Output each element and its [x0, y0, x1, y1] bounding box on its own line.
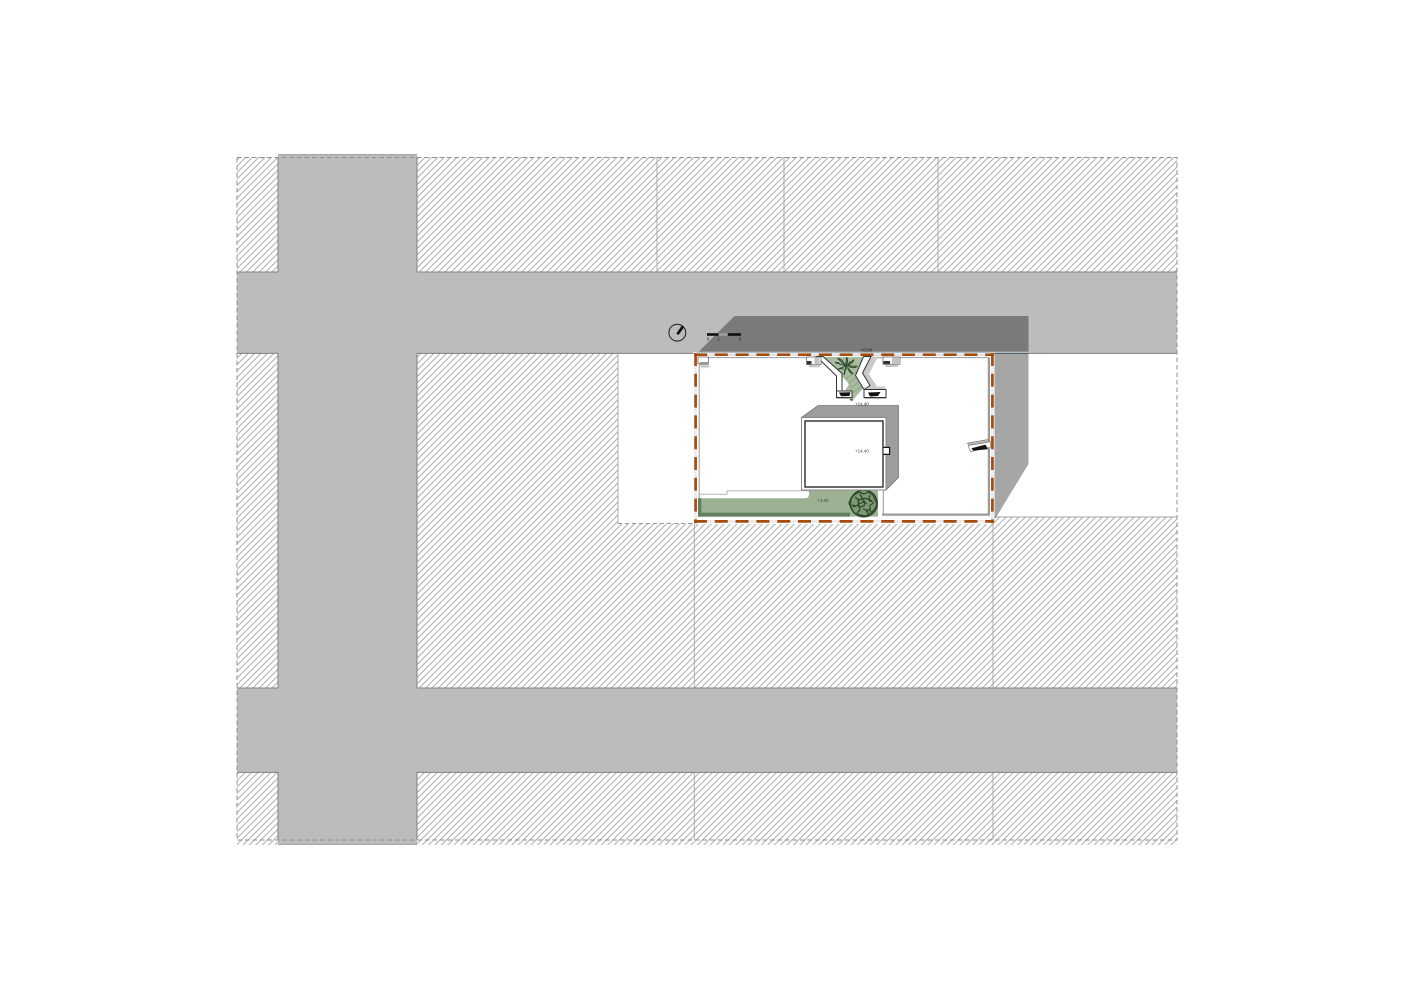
svg-text:+14.40: +14.40: [855, 449, 869, 454]
svg-text:+14.40: +14.40: [855, 402, 869, 407]
svg-text:+0.00: +0.00: [861, 348, 873, 353]
svg-text:+3.05: +3.05: [817, 498, 829, 503]
